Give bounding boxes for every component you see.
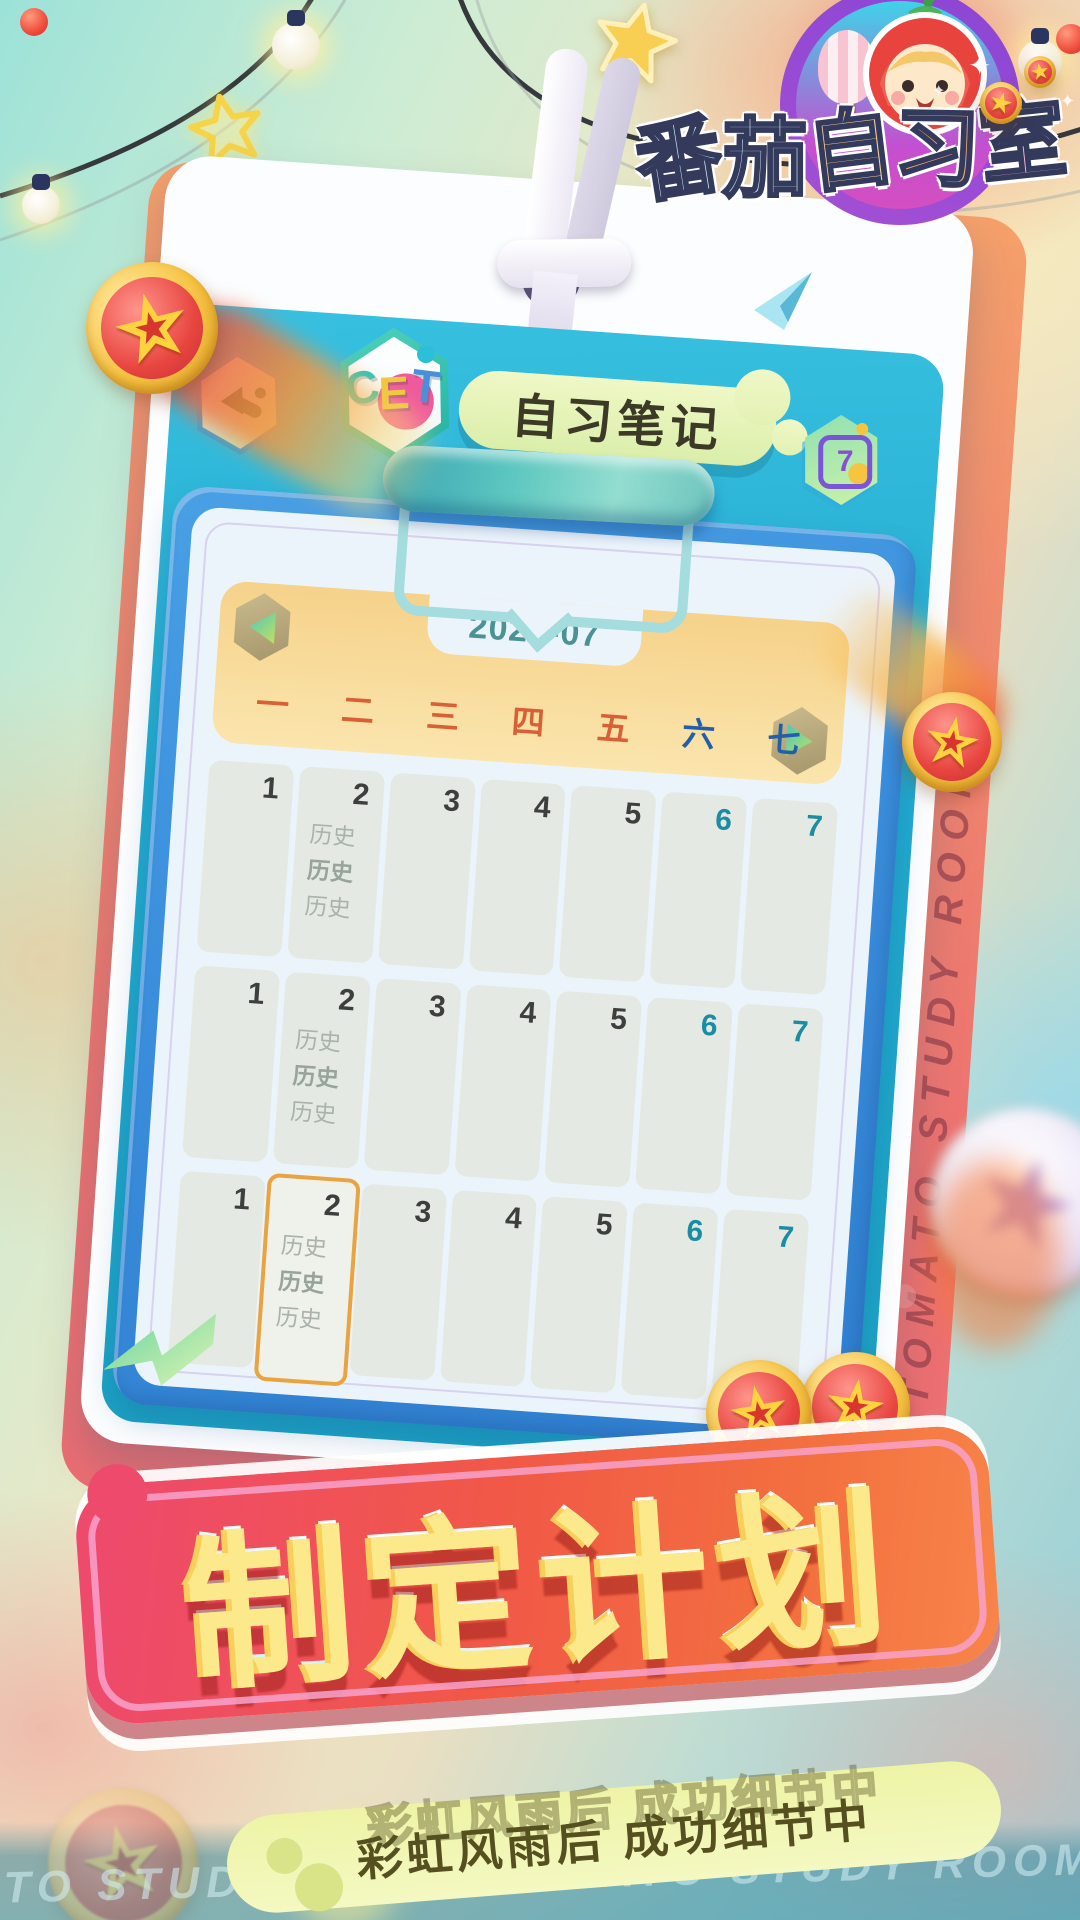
prev-month-button[interactable]	[229, 591, 296, 663]
entry: 历史	[309, 823, 381, 851]
day-cell[interactable]: 1	[196, 760, 294, 957]
paper-plane-icon	[752, 270, 816, 332]
app-promo-screen: TOMATO STUDY ROOM	[0, 0, 1080, 1920]
calendar-icon: 7	[818, 435, 872, 489]
date-label: 7	[776, 1213, 809, 1255]
logo-char: 茄	[722, 117, 808, 203]
entry: 历史	[278, 1270, 350, 1298]
logo-char: 番	[630, 111, 728, 209]
day-cell[interactable]: 3	[363, 978, 461, 1175]
app-logo: ✦ ✦ ✦ ★ ★ 番茄自习室	[740, 0, 1080, 210]
page-title: 自习笔记	[509, 376, 725, 461]
day-cell[interactable]: 7	[740, 798, 838, 995]
day-cell[interactable]: 4	[440, 1190, 538, 1387]
entry-list: 历史 历史 历史	[304, 823, 381, 923]
date-label: 3	[442, 776, 475, 818]
day-cell[interactable]: 4	[468, 779, 566, 976]
bulb-cap	[32, 174, 50, 190]
neon-star-icon	[188, 92, 264, 164]
date-label: 2	[337, 975, 370, 1017]
entry: 历史	[280, 1234, 352, 1262]
day-cell[interactable]: 5	[545, 991, 643, 1188]
weekday-label: 三	[399, 687, 488, 741]
date-label: 4	[519, 988, 552, 1030]
yellow-dot	[856, 423, 868, 435]
entry: 历史	[295, 1028, 367, 1056]
bulb-cap	[287, 10, 305, 26]
calendar-grid: 1 2 历史 历史 历史 3 4 5 6 7	[167, 760, 838, 1414]
entry-list: 历史 历史 历史	[289, 1028, 366, 1128]
date-label: 7	[805, 802, 838, 844]
day-cell[interactable]: 6	[650, 791, 748, 988]
calendar-icon-day: 7	[837, 445, 854, 479]
day-cell-highlighted[interactable]: 2 历史 历史 历史	[253, 1173, 360, 1387]
weekday-label: 一	[228, 675, 317, 729]
date-label: 5	[595, 1200, 628, 1242]
date-label: 6	[700, 1001, 733, 1043]
day-cell[interactable]: 1	[182, 965, 280, 1162]
ornament-ball	[20, 8, 48, 36]
day-cell[interactable]: 5	[559, 785, 657, 982]
entry: 历史	[292, 1064, 364, 1092]
date-label: 6	[685, 1206, 718, 1248]
logo-char: 习	[893, 106, 980, 193]
light-bulb	[272, 22, 320, 70]
sparkle-icon: ✦	[932, 84, 945, 100]
weekday-label: 二	[314, 681, 403, 735]
date-label: 1	[261, 763, 294, 805]
date-label: 3	[414, 1187, 447, 1229]
headline-text: 制定计划	[174, 1429, 901, 1721]
orange-glow	[930, 1160, 1060, 1350]
pill-dot	[265, 1837, 304, 1876]
weekday-label: 五	[569, 699, 658, 753]
day-cell[interactable]: 3	[378, 772, 476, 969]
star-coin: ★ ★	[894, 684, 1010, 800]
green-ribbon	[94, 1302, 263, 1408]
date-label: 4	[504, 1194, 537, 1236]
pill-dot	[293, 1861, 345, 1913]
day-cell[interactable]: 3	[349, 1183, 447, 1380]
entry: 历史	[275, 1306, 347, 1334]
weekday-label: 六	[654, 705, 743, 759]
date-label: 6	[714, 795, 747, 837]
date-label: 3	[428, 982, 461, 1024]
entry: 历史	[304, 895, 376, 923]
date-label: 5	[624, 789, 657, 831]
entry: 历史	[306, 859, 378, 887]
coin-star-icon: ★	[894, 684, 1010, 800]
date-label: 2	[352, 770, 385, 812]
date-label: 5	[609, 994, 642, 1036]
date-label: 1	[247, 969, 280, 1011]
small-star-coin: ★	[1021, 53, 1058, 90]
entry: 历史	[289, 1100, 361, 1128]
weekday-label: 四	[484, 693, 573, 747]
calendar-7-button[interactable]: 7	[800, 415, 882, 505]
day-cell[interactable]: 2 历史 历史 历史	[287, 766, 385, 963]
date-label: 7	[790, 1007, 823, 1049]
day-cell[interactable]: 4	[454, 984, 552, 1181]
day-cell[interactable]: 7	[726, 1003, 824, 1200]
date-label: 4	[533, 783, 566, 825]
sparkle-icon: ✦	[1060, 92, 1075, 110]
light-bulb	[22, 186, 60, 224]
coin-star-icon: ★	[1021, 53, 1058, 90]
weekday-label: 七	[740, 711, 829, 765]
calendar-week-row: 1 2 历史 历史 历史 3 4 5 6 7	[182, 965, 824, 1200]
logo-char: 自	[803, 103, 899, 199]
day-cell[interactable]: 6	[635, 997, 733, 1194]
day-cell[interactable]: 2 历史 历史 历史	[273, 972, 371, 1169]
day-cell[interactable]: 5	[530, 1196, 628, 1393]
date-label: 2	[323, 1181, 356, 1223]
sparkle-icon: ✦	[968, 52, 991, 80]
entry-list: 历史 历史 历史	[275, 1234, 352, 1334]
calendar-panel: 2022-07 一 二 三 四 五	[132, 506, 897, 1433]
date-label: 1	[232, 1174, 265, 1216]
